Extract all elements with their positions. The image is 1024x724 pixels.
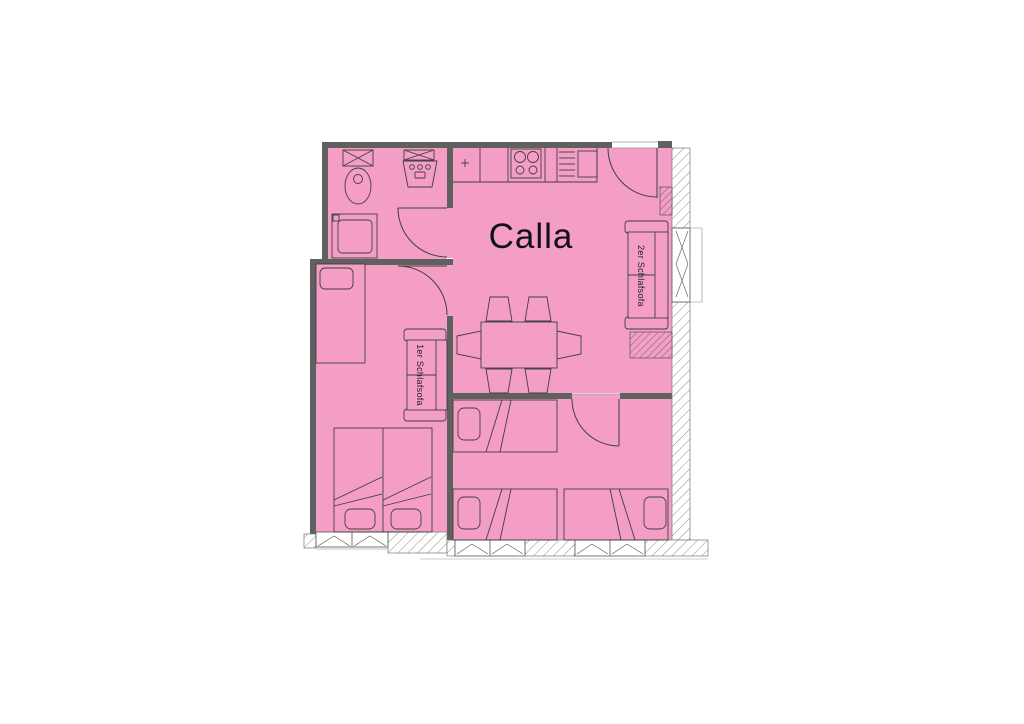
wall-bedroom-left [310, 259, 316, 540]
floorplan-page: Calla 2er Schlafsofa 1er Schlafsofa [0, 0, 1024, 724]
hatch-bottom-a [447, 540, 455, 556]
dining-chair [557, 331, 581, 359]
dining-chair [525, 369, 551, 393]
sofa-single-label: 1er Schlafsofa [415, 344, 425, 406]
window-bedroom-left [316, 532, 388, 549]
window-living-right [672, 228, 702, 302]
sofa-armrest [404, 329, 446, 341]
sofa-armrest [625, 221, 668, 233]
sofa-armrest [625, 317, 668, 329]
dining-table [481, 322, 557, 368]
window-bedroom-right-2 [575, 540, 645, 556]
hatch-bottom-left-cap [304, 534, 316, 548]
hatch-bottom-b [525, 540, 575, 556]
dining-chair [486, 297, 512, 321]
living-room-label: Calla [489, 217, 574, 256]
bedroom-right-doorway [572, 394, 620, 399]
wall-top-right-stub [658, 141, 672, 148]
bedroom-left-doorway [447, 265, 453, 316]
sofa-armrest [404, 409, 446, 421]
hatch-bottom-left-mid [388, 532, 447, 553]
pier-entrance [660, 187, 672, 215]
wall-center-bottom [447, 316, 453, 540]
bathroom-doorway [447, 208, 453, 258]
wall-center-top [447, 148, 453, 208]
dining-chair [457, 331, 481, 359]
bedroom-right-area [453, 399, 672, 540]
wall-bedroom-right-top-b [620, 393, 672, 399]
hatch-bottom-corner [645, 540, 708, 556]
dining-chair [525, 297, 551, 321]
wardrobe [316, 264, 365, 363]
sofa-double-label: 2er Schlafsofa [636, 245, 646, 307]
dining-chair [486, 369, 512, 393]
wall-bedroom-right-top-a [453, 393, 572, 399]
hatch-right-lower [672, 302, 690, 540]
window-bedroom-right-1 [455, 540, 525, 556]
wall-bathroom-left [322, 142, 328, 259]
hatch-right-upper [672, 148, 690, 228]
wall-top [322, 142, 612, 148]
floorplan-calla: Calla 2er Schlafsofa 1er Schlafsofa [0, 0, 1024, 724]
pier-below-sofa [630, 332, 672, 358]
